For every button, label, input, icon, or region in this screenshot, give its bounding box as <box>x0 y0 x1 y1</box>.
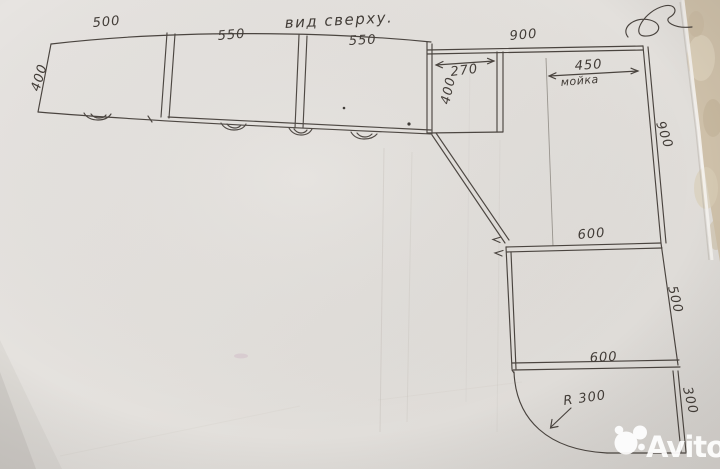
photo-of-sketch: 500 550 вид сверху. 550 400 900 270 400 … <box>0 0 720 469</box>
avito-logo-circle-small-top <box>615 426 624 435</box>
avito-logo-circle-small-bottom <box>638 444 645 451</box>
photo-vignette <box>0 0 720 469</box>
avito-logo-circle-medium <box>633 426 647 440</box>
watermark-text: Avito <box>646 430 720 464</box>
sketch-drawing: 500 550 вид сверху. 550 400 900 270 400 … <box>0 0 720 469</box>
